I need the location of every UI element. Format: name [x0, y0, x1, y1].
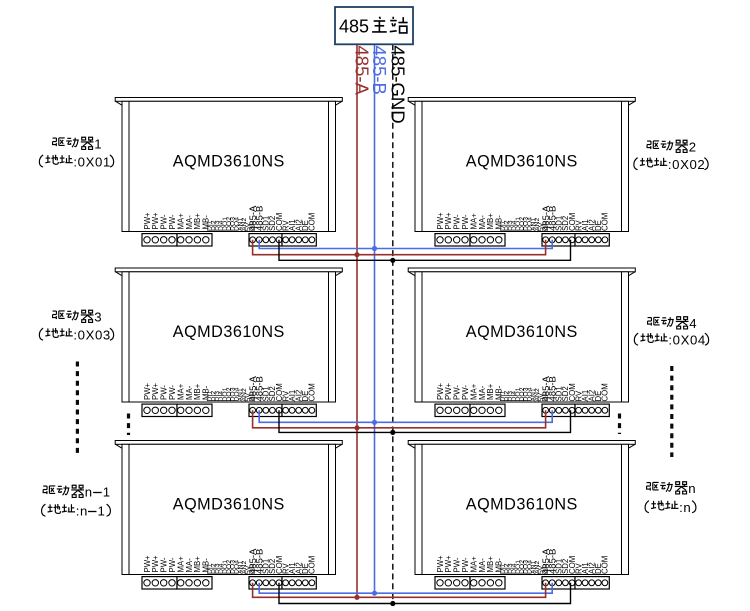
svg-text:3: 3: [94, 310, 102, 325]
svg-text:2: 2: [689, 140, 697, 155]
svg-text:1: 1: [98, 504, 106, 519]
svg-text:n: n: [85, 485, 93, 500]
svg-text::n: :n: [679, 500, 691, 515]
svg-text::n: :n: [76, 504, 88, 519]
svg-text:485-GND: 485-GND: [387, 46, 408, 124]
svg-text:n: n: [688, 481, 696, 496]
svg-text::0X03: :0X03: [73, 328, 110, 343]
svg-text:485: 485: [339, 17, 369, 37]
svg-text:485-B: 485-B: [369, 46, 390, 95]
svg-text::0X01: :0X01: [73, 154, 110, 169]
svg-text:1: 1: [103, 485, 111, 500]
svg-text::0X04: :0X04: [668, 333, 705, 348]
svg-text:1: 1: [94, 137, 102, 152]
svg-text::0X02: :0X02: [668, 157, 705, 172]
svg-text:4: 4: [689, 316, 697, 331]
